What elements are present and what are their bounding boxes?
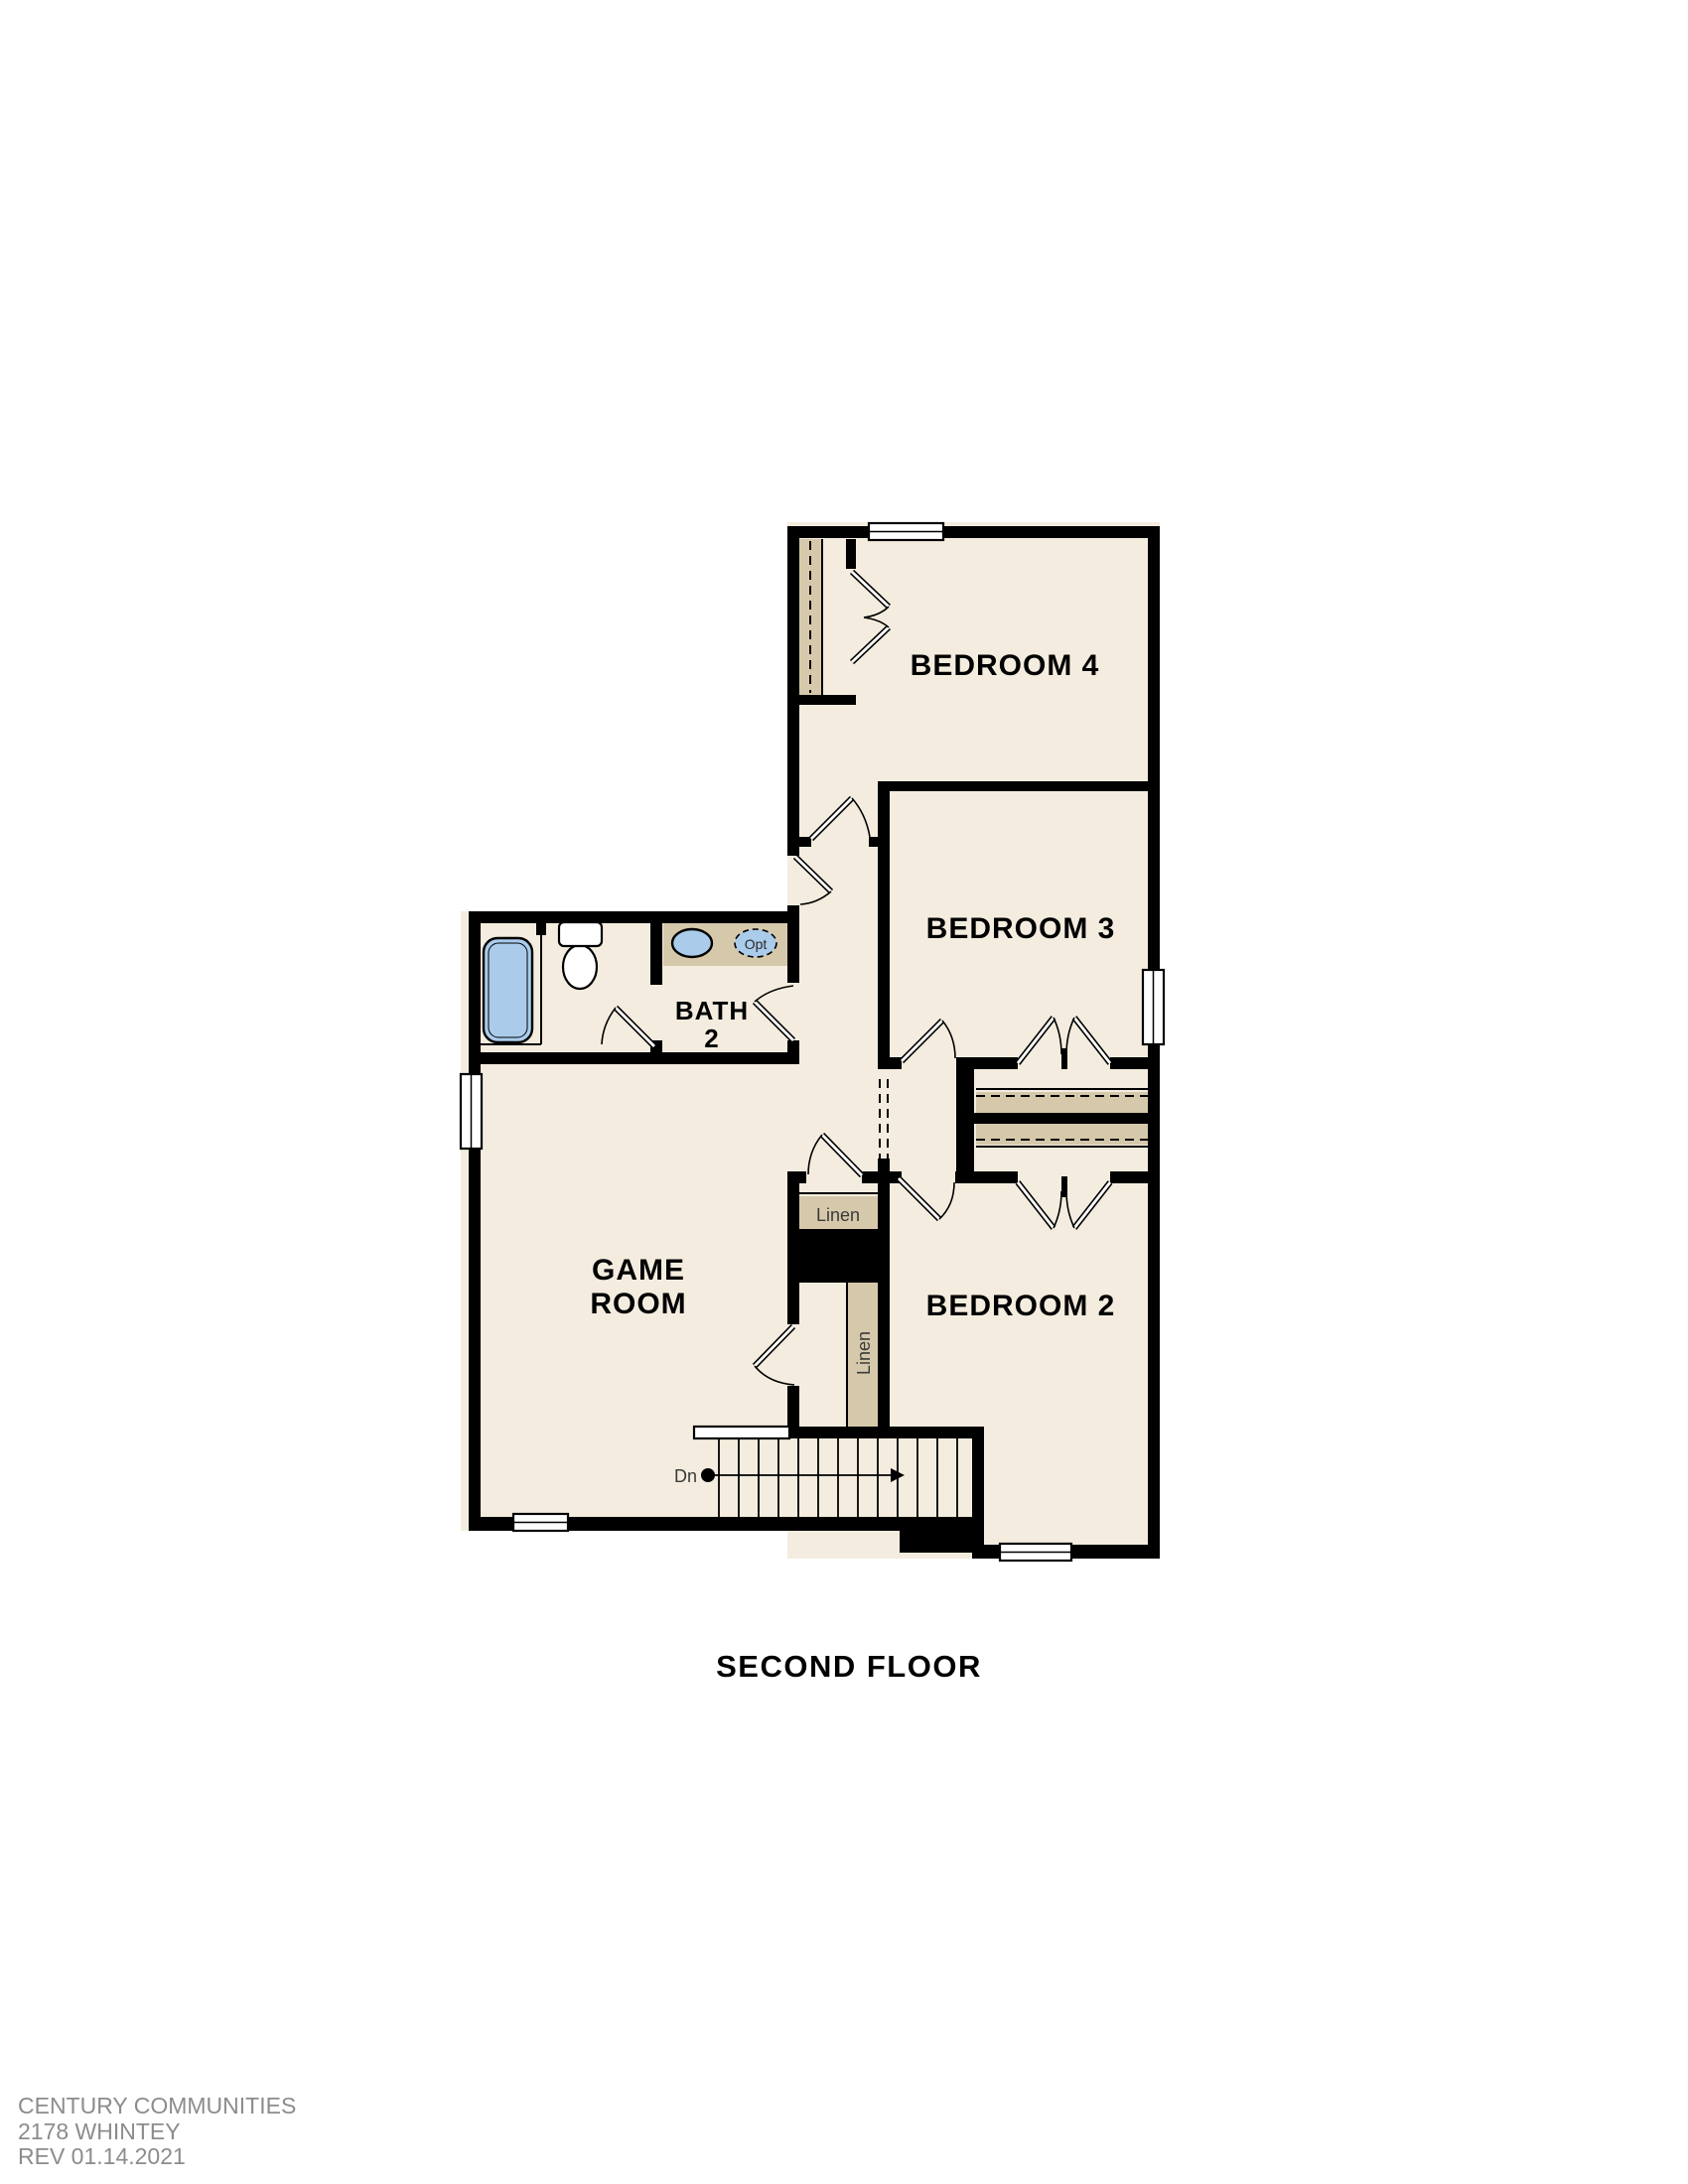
bedroom2-closet-shelf xyxy=(976,1124,1148,1145)
window-gameroom-bottom xyxy=(513,1514,568,1531)
floor-plan-drawing: BEDROOM 4 BEDROOM 3 BEDROOM 2 BATH 2 GAM… xyxy=(0,0,1688,2184)
vanity-sink xyxy=(672,929,712,957)
bedroom3-closet-shelf xyxy=(976,1092,1148,1115)
bathtub xyxy=(484,938,532,1042)
linen-upper-label: Linen xyxy=(816,1205,860,1225)
bedroom4-label: BEDROOM 4 xyxy=(911,649,1100,682)
window-gameroom-left xyxy=(461,1074,482,1149)
stairs-down-label: Dn xyxy=(674,1466,697,1486)
bath-label-line2: 2 xyxy=(704,1024,719,1053)
chase-solid-block xyxy=(787,1229,890,1283)
stair-landing xyxy=(694,1427,789,1438)
window-bedroom4-top xyxy=(869,523,943,540)
floor-plan-page: BEDROOM 4 BEDROOM 3 BEDROOM 2 BATH 2 GAM… xyxy=(0,0,1688,2184)
footer-builder-name: CENTURY COMMUNITIES xyxy=(18,2093,296,2118)
linen-lower-label: Linen xyxy=(854,1331,874,1375)
window-bedroom2-bottom xyxy=(1000,1544,1071,1561)
footer-block: CENTURY COMMUNITIES 2178 WHINTEY REV 01.… xyxy=(18,2093,296,2169)
gameroom-label-line2: ROOM xyxy=(590,1288,686,1320)
gameroom-label-line1: GAME xyxy=(592,1254,685,1287)
bedroom3-label: BEDROOM 3 xyxy=(926,912,1116,945)
bedroom2-label: BEDROOM 2 xyxy=(926,1290,1116,1322)
window-bedroom3-right xyxy=(1143,970,1164,1044)
footer-plan-name: 2178 WHINTEY xyxy=(18,2118,181,2144)
footer-revision-date: REV 01.14.2021 xyxy=(18,2143,186,2169)
bath-label-line1: BATH xyxy=(675,996,749,1025)
optional-sink-label: Opt xyxy=(745,936,768,952)
page-title: SECOND FLOOR xyxy=(716,1649,982,1684)
